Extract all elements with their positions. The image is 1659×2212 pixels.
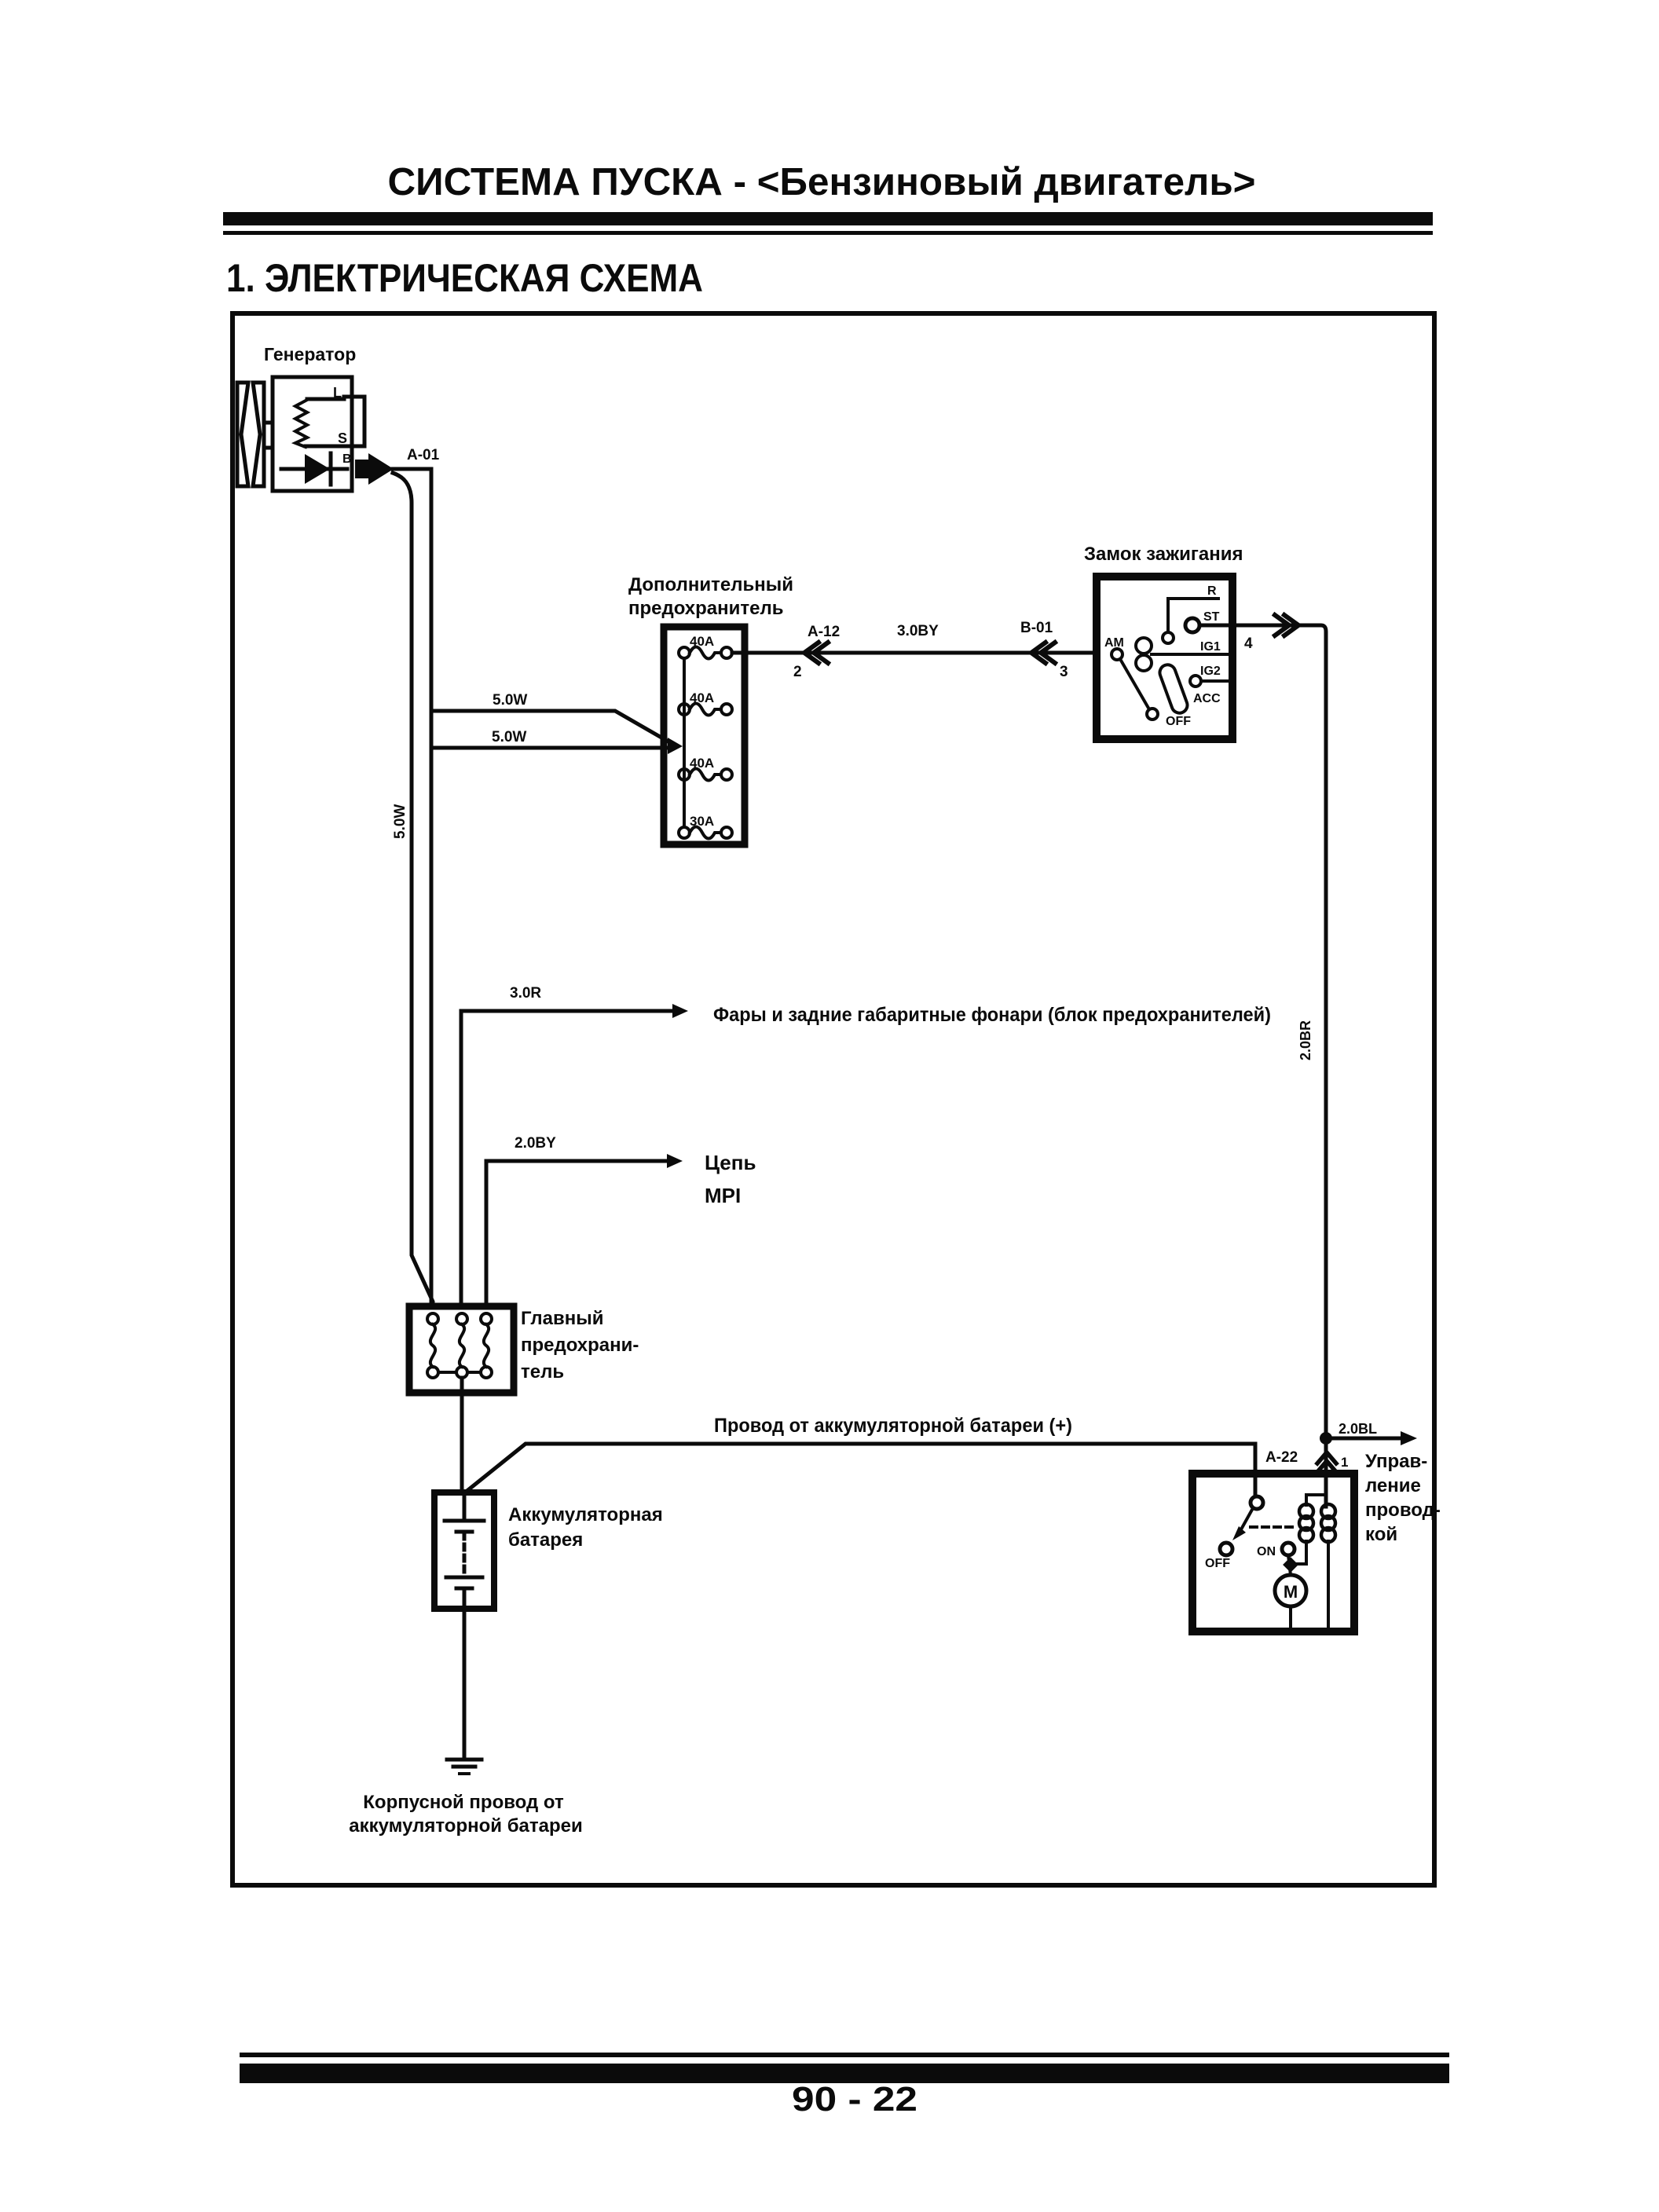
svg-text:Корпусной провод от: Корпусной провод от bbox=[363, 1792, 564, 1813]
svg-text:B: B bbox=[342, 452, 352, 466]
svg-text:A-01: A-01 bbox=[407, 447, 440, 463]
svg-text:2.0BY: 2.0BY bbox=[515, 1135, 556, 1152]
svg-text:Дополнительный: Дополнительный bbox=[628, 574, 793, 595]
svg-text:2.0BL: 2.0BL bbox=[1339, 1421, 1377, 1437]
svg-text:провод-: провод- bbox=[1365, 1500, 1441, 1521]
svg-text:ACC: ACC bbox=[1193, 692, 1221, 705]
svg-text:OFF: OFF bbox=[1205, 1557, 1230, 1570]
svg-text:AM: AM bbox=[1104, 636, 1124, 650]
svg-text:Замок зажигания: Замок зажигания bbox=[1084, 544, 1243, 565]
svg-text:Провод от аккумуляторной батар: Провод от аккумуляторной батареи (+) bbox=[714, 1415, 1072, 1437]
svg-text:L: L bbox=[333, 385, 342, 401]
svg-text:1: 1 bbox=[1341, 1455, 1348, 1470]
svg-text:тель: тель bbox=[521, 1361, 564, 1382]
svg-text:40A: 40A bbox=[690, 690, 714, 705]
svg-text:40A: 40A bbox=[690, 634, 714, 649]
svg-text:IG1: IG1 bbox=[1200, 640, 1221, 654]
svg-text:2.0BR: 2.0BR bbox=[1298, 1020, 1313, 1060]
svg-text:батарея: батарея bbox=[508, 1529, 583, 1551]
svg-text:5.0W: 5.0W bbox=[392, 804, 408, 839]
svg-text:Генератор: Генератор bbox=[264, 344, 356, 364]
svg-text:MPI: MPI bbox=[705, 1184, 741, 1207]
svg-text:Аккумуляторная: Аккумуляторная bbox=[508, 1504, 663, 1525]
svg-text:5.0W: 5.0W bbox=[492, 729, 526, 745]
svg-text:A-22: A-22 bbox=[1265, 1449, 1298, 1466]
svg-text:OFF: OFF bbox=[1166, 715, 1191, 728]
svg-text:Управ-: Управ- bbox=[1365, 1451, 1427, 1472]
svg-text:IG2: IG2 bbox=[1200, 665, 1221, 678]
svg-text:Цепь: Цепь bbox=[705, 1151, 756, 1174]
svg-text:2: 2 bbox=[793, 664, 802, 680]
svg-text:ST: ST bbox=[1203, 610, 1220, 624]
svg-text:30A: 30A bbox=[690, 814, 714, 829]
svg-text:S: S bbox=[338, 430, 347, 446]
svg-text:предохранитель: предохранитель bbox=[628, 598, 784, 619]
svg-text:3.0BY: 3.0BY bbox=[897, 623, 939, 639]
svg-text:кой: кой bbox=[1365, 1524, 1397, 1545]
svg-text:предохрани-: предохрани- bbox=[521, 1335, 639, 1356]
svg-text:40A: 40A bbox=[690, 756, 714, 771]
svg-text:СИСТЕМА ПУСКА - <Бензиновый дв: СИСТЕМА ПУСКА - <Бензиновый двигатель> bbox=[388, 161, 1256, 203]
svg-text:3.0R: 3.0R bbox=[510, 985, 541, 1002]
svg-text:90 - 22: 90 - 22 bbox=[792, 2080, 917, 2119]
svg-text:ON: ON bbox=[1257, 1545, 1276, 1558]
svg-text:ление: ление bbox=[1365, 1475, 1421, 1496]
svg-text:B-01: B-01 bbox=[1020, 620, 1053, 636]
svg-text:1. ЭЛЕКТРИЧЕСКАЯ СХЕМА: 1. ЭЛЕКТРИЧЕСКАЯ СХЕМА bbox=[226, 256, 703, 300]
svg-text:аккумуляторной батареи: аккумуляторной батареи bbox=[349, 1815, 583, 1837]
svg-text:3: 3 bbox=[1060, 664, 1068, 680]
svg-text:M: M bbox=[1284, 1582, 1298, 1602]
svg-text:Фары и задние габаритные фонар: Фары и задние габаритные фонари (блок пр… bbox=[713, 1004, 1271, 1026]
svg-text:R: R bbox=[1207, 584, 1217, 598]
svg-text:A-12: A-12 bbox=[808, 624, 840, 640]
svg-text:Главный: Главный bbox=[521, 1308, 604, 1329]
svg-text:4: 4 bbox=[1244, 635, 1253, 652]
svg-text:5.0W: 5.0W bbox=[493, 692, 527, 709]
